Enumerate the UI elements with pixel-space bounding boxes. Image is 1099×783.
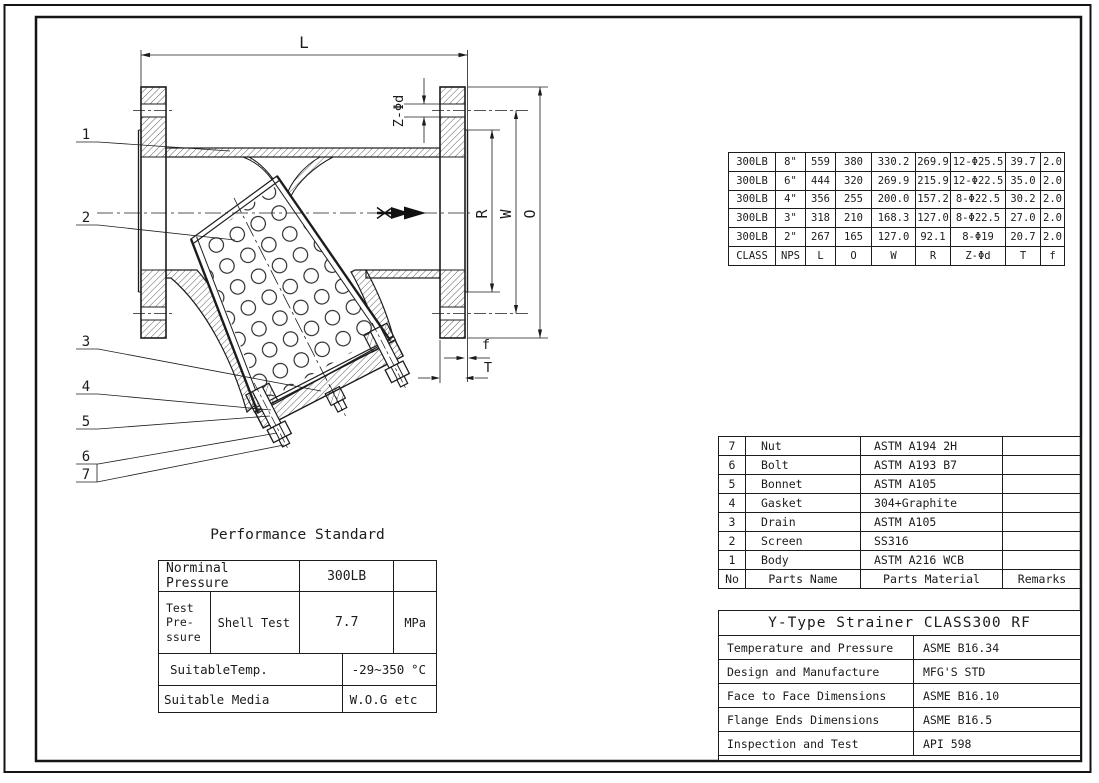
table-row: 1BodyASTM A216 WCB	[719, 551, 1082, 570]
suitable-temp-label: SuitableTemp.	[159, 654, 343, 685]
dim-label-Z-phi-d: Z-Φd	[391, 95, 407, 128]
table-cell: ASTM A216 WCB	[861, 551, 1003, 570]
dim-label-R: R	[473, 209, 491, 219]
table-cell: 559	[806, 153, 836, 172]
table-header-cell: NPS	[776, 246, 806, 265]
title-block-label: Flange Ends Dimensions	[719, 708, 914, 731]
shell-test-unit: MPa	[394, 592, 436, 653]
title-block-value: ASME B16.5	[914, 708, 1080, 731]
table-cell: 8-Φ22.5	[951, 190, 1006, 209]
table-cell: 8"	[776, 153, 806, 172]
table-cell: 444	[806, 171, 836, 190]
suitable-temp-cell: -29~350 °C	[343, 654, 436, 685]
suitable-media-label: Suitable Media	[159, 686, 343, 712]
title-block-row: Temperature and Pressure ASME B16.34	[719, 636, 1080, 660]
table-row: 300LB2"267165127.092.18-Φ1920.72.0	[729, 228, 1065, 247]
table-cell: 157.2	[916, 190, 951, 209]
table-cell: 1	[719, 551, 746, 570]
table-cell: 300LB	[729, 209, 776, 228]
table-cell	[1003, 494, 1082, 513]
table-cell: 2"	[776, 228, 806, 247]
drawing-sheet: { "drawing": { "dim_labels": { "L": "L",…	[0, 0, 1099, 783]
performance-row: Test Pre- ssure Shell Test 7.7 MPa	[159, 592, 436, 654]
table-cell: 35.0	[1006, 171, 1041, 190]
title-block-row: Face to Face Dimensions ASME B16.10	[719, 684, 1080, 708]
table-header-cell: W	[872, 246, 916, 265]
performance-row: Suitable Media W.O.G etc	[159, 686, 436, 712]
table-cell: 200.0	[872, 190, 916, 209]
title-block-row: Flange Ends Dimensions ASME B16.5	[719, 708, 1080, 732]
title-block: Y-Type Strainer CLASS300 RF Temperature …	[718, 610, 1081, 761]
table-cell: 12-Φ25.5	[951, 153, 1006, 172]
part-number-7: 7	[82, 467, 90, 483]
table-cell: 92.1	[916, 228, 951, 247]
table-cell: 330.2	[872, 153, 916, 172]
table-cell: 3"	[776, 209, 806, 228]
shell-test-label: Shell Test	[211, 592, 300, 653]
test-pressure-label: Test Pre- ssure	[159, 592, 211, 653]
parts-table-header: No Parts Name Parts Material Remarks	[719, 570, 1082, 589]
suitable-temp-unit: °C	[411, 662, 426, 677]
table-cell: 8-Φ19	[951, 228, 1006, 247]
table-cell: 2.0	[1041, 190, 1065, 209]
part-number-4: 4	[82, 379, 90, 395]
nominal-pressure-value: 300LB	[300, 561, 394, 591]
title-block-value: ASME B16.34	[914, 636, 1080, 659]
table-cell: 255	[836, 190, 872, 209]
table-cell: Bonnet	[746, 475, 861, 494]
table-cell	[1003, 456, 1082, 475]
table-row: 300LB4"356255200.0157.28-Φ22.530.22.0	[729, 190, 1065, 209]
table-cell	[1003, 532, 1082, 551]
table-header-cell: CLASS	[729, 246, 776, 265]
table-cell: 269.9	[872, 171, 916, 190]
performance-row: SuitableTemp. -29~350 °C	[159, 654, 436, 686]
table-header-cell: T	[1006, 246, 1041, 265]
parts-table: 7NutASTM A194 2H6BoltASTM A193 B75Bonnet…	[718, 436, 1082, 589]
dim-label-O: O	[521, 209, 539, 218]
table-header-cell: Z-Φd	[951, 246, 1006, 265]
part-number-5: 5	[82, 414, 90, 430]
table-header-cell: O	[836, 246, 872, 265]
table-cell: 210	[836, 209, 872, 228]
table-row: 300LB6"444320269.9215.912-Φ22.535.02.0	[729, 171, 1065, 190]
dimension-table: 300LB8"559380330.2269.912-Φ25.539.72.030…	[728, 152, 1065, 266]
title-block-row: Inspection and Test API 598	[719, 732, 1080, 756]
left-flange	[133, 87, 174, 338]
table-cell	[1003, 513, 1082, 532]
table-cell: 300LB	[729, 228, 776, 247]
table-cell: 127.0	[916, 209, 951, 228]
table-cell: 2.0	[1041, 153, 1065, 172]
suitable-temp-value: -29~350	[352, 662, 405, 677]
table-cell: 168.3	[872, 209, 916, 228]
dim-label-L: L	[299, 33, 309, 52]
table-row: 300LB8"559380330.2269.912-Φ25.539.72.0	[729, 153, 1065, 172]
table-cell: Body	[746, 551, 861, 570]
part-number-2: 2	[82, 210, 90, 226]
table-header-cell: L	[806, 246, 836, 265]
suitable-media-value: W.O.G etc	[343, 686, 436, 712]
flow-arrow	[377, 207, 426, 220]
table-cell: 127.0	[872, 228, 916, 247]
table-row: 4Gasket304+Graphite	[719, 494, 1082, 513]
drawing-title: Y-Type Strainer CLASS300 RF	[719, 611, 1080, 636]
title-block-value: MFG'S STD	[914, 660, 1080, 683]
empty-cell	[394, 561, 436, 591]
table-cell: 2	[719, 532, 746, 551]
table-cell: 8-Φ22.5	[951, 209, 1006, 228]
table-cell: Nut	[746, 437, 861, 456]
table-cell: Bolt	[746, 456, 861, 475]
performance-row: Norminal Pressure 300LB	[159, 561, 436, 592]
table-cell: 4"	[776, 190, 806, 209]
title-block-empty-row	[719, 756, 1080, 760]
table-row: CLASS NPS L O W R Z-Φd T f	[729, 246, 1065, 265]
table-cell: 300LB	[729, 153, 776, 172]
title-block-label: Temperature and Pressure	[719, 636, 914, 659]
table-header-cell: R	[916, 246, 951, 265]
table-header-cell: No	[719, 570, 746, 589]
table-cell: ASTM A193 B7	[861, 456, 1003, 475]
table-cell: ASTM A194 2H	[861, 437, 1003, 456]
table-cell: 380	[836, 153, 872, 172]
table-cell: 6	[719, 456, 746, 475]
table-row: 2ScreenSS316	[719, 532, 1082, 551]
table-cell: 27.0	[1006, 209, 1041, 228]
table-cell: Screen	[746, 532, 861, 551]
title-block-value: ASME B16.10	[914, 684, 1080, 707]
table-cell: 304+Graphite	[861, 494, 1003, 513]
table-cell: ASTM A105	[861, 475, 1003, 494]
table-cell: 30.2	[1006, 190, 1041, 209]
table-cell: 300LB	[729, 171, 776, 190]
table-cell: 320	[836, 171, 872, 190]
table-cell: Gasket	[746, 494, 861, 513]
dim-label-W: W	[497, 209, 515, 219]
table-cell: 356	[806, 190, 836, 209]
table-cell: 2.0	[1041, 228, 1065, 247]
shell-test-value: 7.7	[300, 592, 394, 653]
part-number-6: 6	[82, 449, 90, 465]
table-cell: 20.7	[1006, 228, 1041, 247]
performance-table: Norminal Pressure 300LB Test Pre- ssure …	[158, 560, 437, 713]
table-header-cell: Remarks	[1003, 570, 1082, 589]
table-cell: 215.9	[916, 171, 951, 190]
dimension-table-header: CLASS NPS L O W R Z-Φd T f	[729, 246, 1065, 265]
title-block-label: Design and Manufacture	[719, 660, 914, 683]
table-cell: 39.7	[1006, 153, 1041, 172]
dim-label-T: T	[484, 360, 492, 376]
table-cell: 12-Φ22.5	[951, 171, 1006, 190]
table-cell	[1003, 551, 1082, 570]
title-block-value: API 598	[914, 732, 1080, 755]
table-cell	[1003, 475, 1082, 494]
nominal-pressure-label: Norminal Pressure	[159, 561, 300, 591]
table-row: 6BoltASTM A193 B7	[719, 456, 1082, 475]
table-cell: 4	[719, 494, 746, 513]
performance-title: Performance Standard	[158, 527, 437, 543]
dim-label-f: f	[482, 337, 490, 353]
table-cell: 2.0	[1041, 171, 1065, 190]
table-header-cell: Parts Material	[861, 570, 1003, 589]
table-cell: 269.9	[916, 153, 951, 172]
table-cell: 318	[806, 209, 836, 228]
table-cell: 165	[836, 228, 872, 247]
table-header-cell: f	[1041, 246, 1065, 265]
table-row: 5BonnetASTM A105	[719, 475, 1082, 494]
table-cell: 2.0	[1041, 209, 1065, 228]
table-cell: 6"	[776, 171, 806, 190]
table-cell: ASTM A105	[861, 513, 1003, 532]
table-cell: 300LB	[729, 190, 776, 209]
table-cell: 3	[719, 513, 746, 532]
table-row: No Parts Name Parts Material Remarks	[719, 570, 1082, 589]
part-number-1: 1	[82, 127, 90, 143]
table-cell: 267	[806, 228, 836, 247]
title-block-label: Inspection and Test	[719, 732, 914, 755]
table-header-cell: Parts Name	[746, 570, 861, 589]
table-cell: SS316	[861, 532, 1003, 551]
title-block-label: Face to Face Dimensions	[719, 684, 914, 707]
table-row: 300LB3"318210168.3127.08-Φ22.527.02.0	[729, 209, 1065, 228]
table-cell: 5	[719, 475, 746, 494]
table-cell: Drain	[746, 513, 861, 532]
table-row: 7NutASTM A194 2H	[719, 437, 1082, 456]
table-cell: 7	[719, 437, 746, 456]
part-number-3: 3	[82, 334, 90, 350]
table-row: 3DrainASTM A105	[719, 513, 1082, 532]
title-block-row: Design and Manufacture MFG'S STD	[719, 660, 1080, 684]
table-cell	[1003, 437, 1082, 456]
